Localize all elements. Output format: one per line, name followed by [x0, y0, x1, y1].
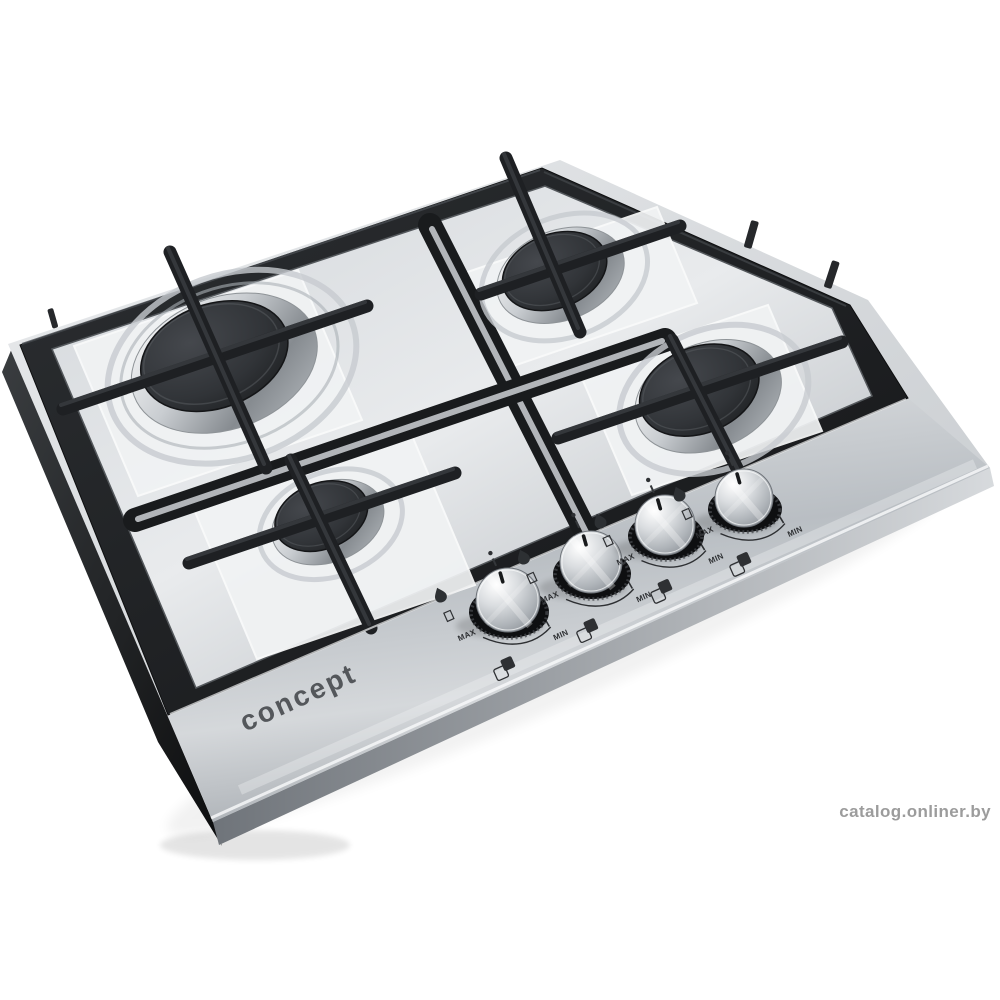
- grate-prong: [47, 308, 58, 329]
- corner-shadow: [160, 830, 350, 860]
- watermark: catalog.onliner.by: [839, 802, 991, 821]
- grate-prong: [824, 260, 840, 289]
- knob-indicator-icon: [500, 573, 502, 582]
- gas-hob-product-photo: concept MAX MIN: [0, 0, 1000, 1000]
- knob-indicator-icon: [658, 500, 660, 509]
- product-photo-canvas: concept MAX MIN: [0, 0, 1000, 1000]
- knob-indicator-icon: [737, 474, 739, 483]
- knob-indicator-icon: [584, 536, 586, 545]
- grate-prong: [744, 220, 759, 249]
